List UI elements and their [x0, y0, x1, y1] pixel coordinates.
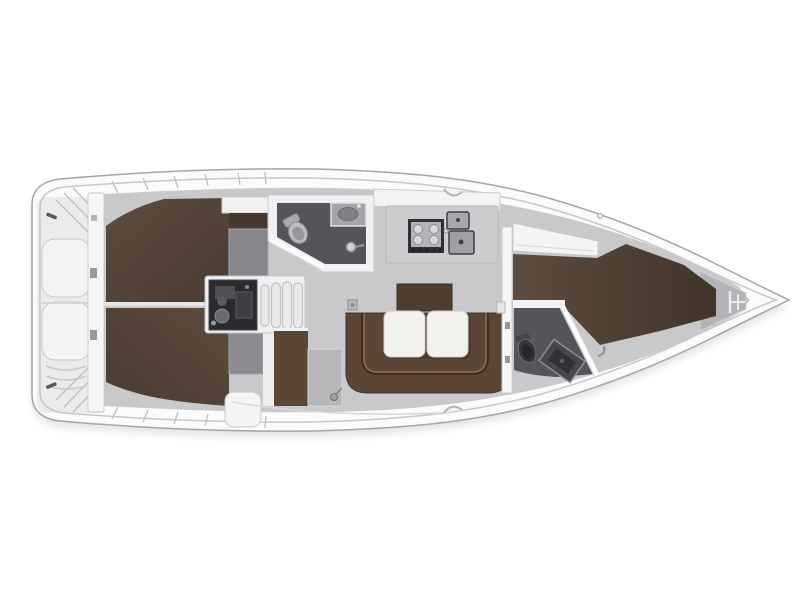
aft-bottom-wall — [263, 330, 274, 406]
stern-locker-top — [42, 239, 90, 297]
stern-locker-bottom — [42, 302, 90, 360]
mast-foot-bolt — [351, 303, 355, 307]
salon-table-leaf-right — [427, 311, 468, 357]
bulkhead-door-handle — [497, 302, 505, 313]
nav-fitting — [331, 394, 338, 401]
bow-fairlead — [598, 214, 603, 219]
engine-part-pulley — [215, 309, 229, 323]
salon-table-leaf-left — [384, 311, 425, 357]
transom-hinge-lower — [90, 330, 97, 340]
transom-fitting — [91, 215, 97, 221]
aft-bottom-locker-white — [225, 392, 261, 427]
aft-top-wardrobe — [229, 229, 268, 276]
yacht-floorplan — [0, 0, 800, 600]
galley — [374, 189, 500, 263]
bulkhead-hinge-lower — [505, 356, 510, 363]
engine-part-bolt — [211, 321, 216, 326]
nav-seat — [274, 331, 308, 406]
engine-part-filter — [217, 296, 227, 306]
aft-bottom-wardrobe — [229, 330, 263, 374]
aft-top-shelf-wood — [229, 213, 268, 229]
fore-heads-wall — [513, 300, 565, 308]
transom-hinge-upper — [90, 268, 97, 278]
transom-bulkhead — [88, 193, 104, 412]
galley-faucet — [444, 229, 448, 233]
aft-top-locker-white — [222, 197, 272, 213]
engine-part-cap — [245, 285, 249, 289]
galley-sink-double — [444, 212, 474, 254]
aft-heads-sink-basin — [338, 208, 358, 221]
aft-heads-shower — [347, 243, 356, 252]
engine-part-head — [236, 292, 252, 318]
bulkhead-hinge-upper — [505, 322, 510, 329]
floorplan-canvas — [0, 0, 800, 600]
aft-heads-faucet — [357, 204, 361, 208]
salon-backrest — [397, 284, 452, 311]
